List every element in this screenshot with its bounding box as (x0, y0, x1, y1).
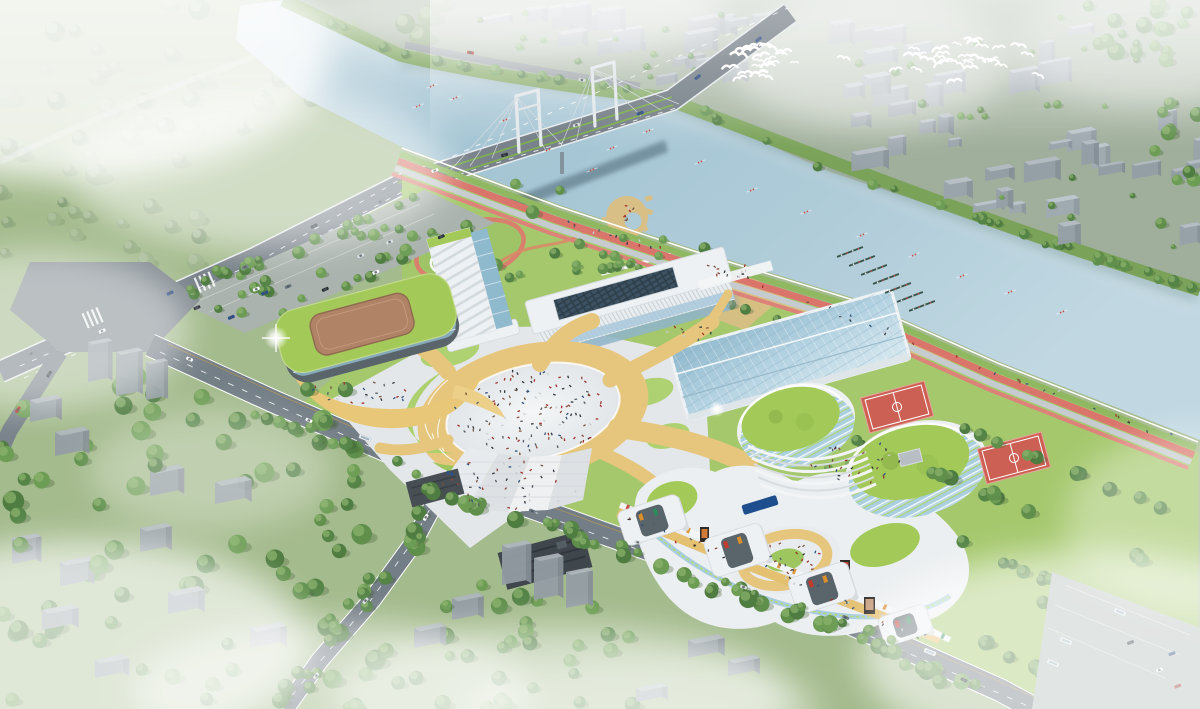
billboard (864, 597, 875, 614)
residential-block (566, 568, 593, 608)
sky-veil (0, 0, 1200, 140)
rendering-canvas (0, 0, 1200, 709)
city-block (1058, 220, 1081, 245)
residential-block (502, 540, 531, 585)
light-flare (709, 401, 725, 417)
residential-block (534, 553, 563, 600)
rendering-stage (0, 0, 1200, 709)
city-block (1180, 222, 1200, 245)
bridge-pier (560, 152, 564, 174)
fog-patch (90, 410, 330, 530)
city-block (944, 177, 973, 199)
